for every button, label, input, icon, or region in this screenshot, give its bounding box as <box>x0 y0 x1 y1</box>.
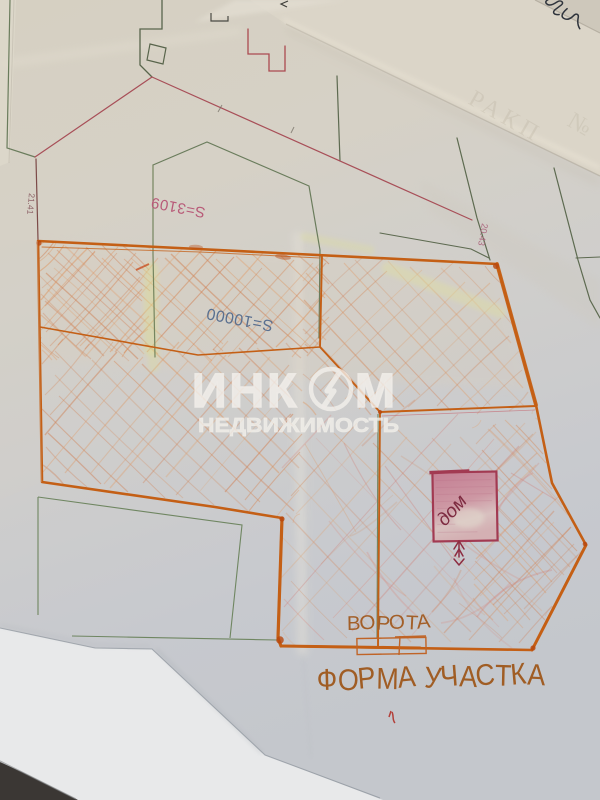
svg-text:21.41: 21.41 <box>25 193 37 215</box>
svg-text:НЕДВИЖИМОСТЬ: НЕДВИЖИМОСТЬ <box>198 415 399 437</box>
svg-text:ИНК: ИНК <box>192 365 299 418</box>
svg-text:М: М <box>355 365 395 418</box>
